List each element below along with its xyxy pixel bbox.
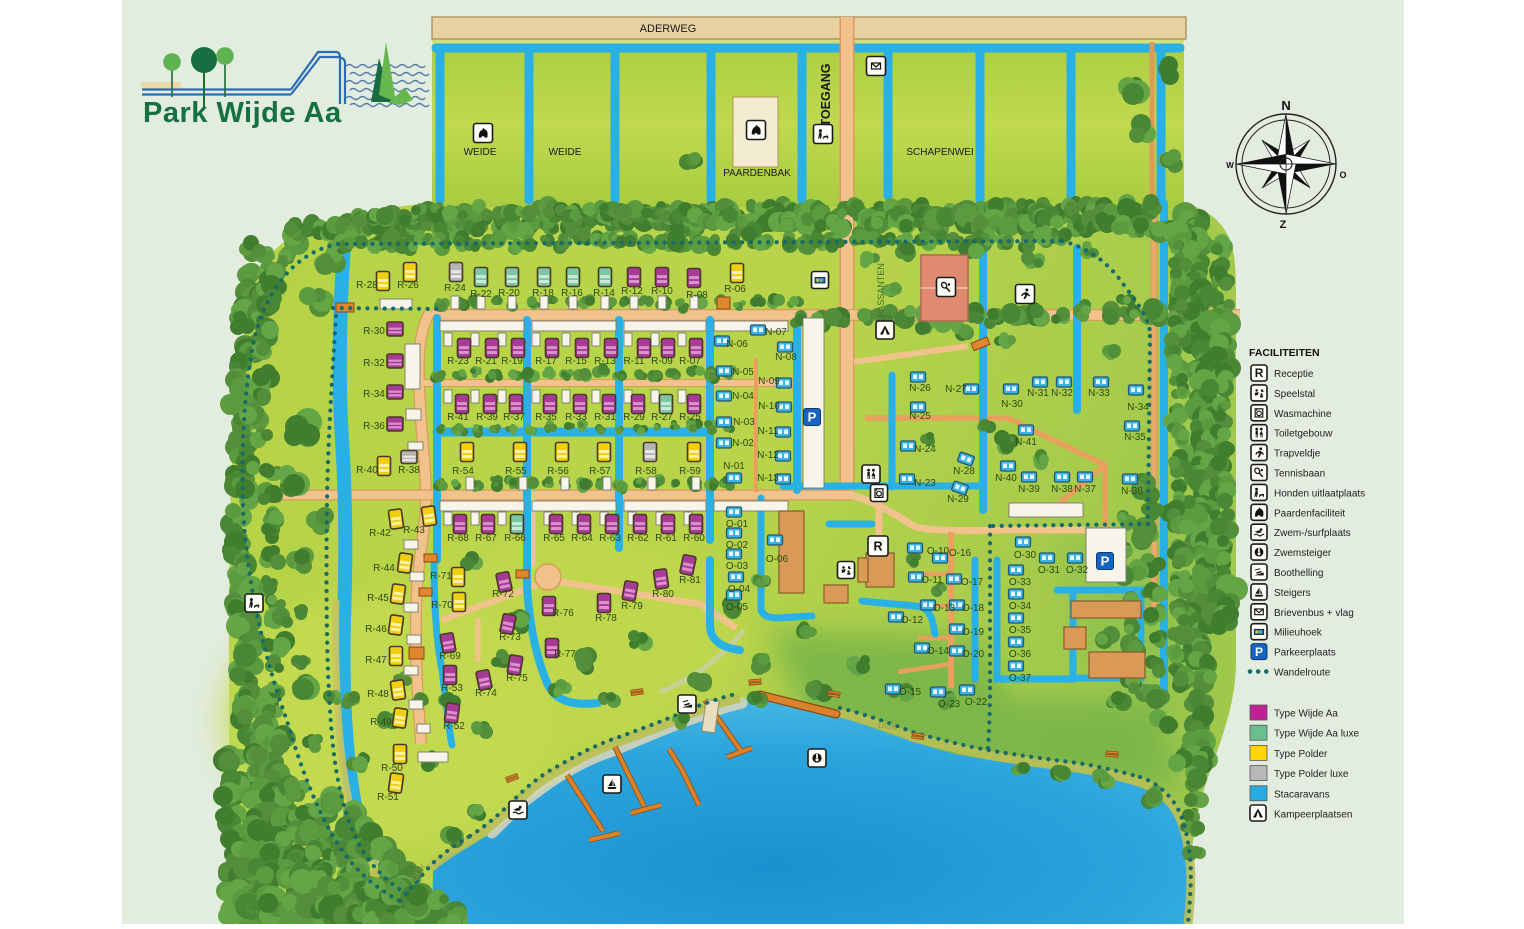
svg-text:N-10: N-10 <box>758 401 780 412</box>
svg-text:O-13: O-13 <box>933 603 956 614</box>
svg-text:FACILITEITEN: FACILITEITEN <box>1249 347 1320 359</box>
svg-text:R: R <box>1255 366 1264 380</box>
svg-text:R-07: R-07 <box>679 356 701 367</box>
svg-text:R-19: R-19 <box>501 356 523 367</box>
svg-text:Speelstal: Speelstal <box>1274 389 1315 400</box>
svg-text:R-32: R-32 <box>363 358 385 369</box>
svg-text:WEIDE: WEIDE <box>549 147 582 158</box>
svg-text:W: W <box>1226 161 1234 170</box>
svg-text:R-33: R-33 <box>565 412 587 423</box>
svg-text:ADERWEG: ADERWEG <box>640 23 697 35</box>
svg-text:R-29: R-29 <box>623 412 645 423</box>
svg-text:N-40: N-40 <box>995 473 1017 484</box>
svg-text:R-53: R-53 <box>441 683 463 694</box>
svg-text:R-81: R-81 <box>679 575 701 586</box>
svg-text:R-51: R-51 <box>377 792 399 803</box>
svg-text:R-12: R-12 <box>621 286 643 297</box>
svg-text:N-34: N-34 <box>1127 402 1149 413</box>
svg-text:O-04: O-04 <box>728 584 751 595</box>
svg-text:Brievenbus + vlag: Brievenbus + vlag <box>1274 608 1354 619</box>
svg-text:N-05: N-05 <box>732 367 754 378</box>
svg-text:N-02: N-02 <box>732 438 754 449</box>
svg-text:R-39: R-39 <box>476 412 498 423</box>
svg-text:R-72: R-72 <box>492 589 514 600</box>
svg-text:R-58: R-58 <box>635 466 657 477</box>
svg-text:N-26: N-26 <box>909 383 931 394</box>
svg-text:TOEGANG: TOEGANG <box>819 64 833 127</box>
svg-text:N-27: N-27 <box>945 384 967 395</box>
svg-text:O-17: O-17 <box>961 577 984 588</box>
svg-text:R-41: R-41 <box>447 412 469 423</box>
svg-text:R-13: R-13 <box>594 356 616 367</box>
svg-text:Parkeerplaats: Parkeerplaats <box>1274 648 1336 659</box>
svg-text:Type Wijde Aa luxe: Type Wijde Aa luxe <box>1274 729 1359 740</box>
svg-text:N-11: N-11 <box>758 426 779 437</box>
svg-text:R-67: R-67 <box>475 533 497 544</box>
svg-text:R-44: R-44 <box>373 563 395 574</box>
svg-text:R-21: R-21 <box>475 356 497 367</box>
svg-text:N-03: N-03 <box>733 417 755 428</box>
svg-text:R-18: R-18 <box>532 288 554 299</box>
svg-text:R-40: R-40 <box>356 465 378 476</box>
svg-text:R-69: R-69 <box>439 651 461 662</box>
svg-text:R-50: R-50 <box>381 763 403 774</box>
svg-text:O-30: O-30 <box>1014 550 1037 561</box>
svg-text:O-37: O-37 <box>1009 673 1032 684</box>
svg-text:R-54: R-54 <box>452 466 474 477</box>
svg-text:Type Polder: Type Polder <box>1274 749 1328 760</box>
svg-text:R-36: R-36 <box>363 421 385 432</box>
svg-text:O-31: O-31 <box>1038 565 1061 576</box>
svg-text:Trapveldje: Trapveldje <box>1274 449 1321 460</box>
svg-text:R-28: R-28 <box>356 280 378 291</box>
svg-text:R-22: R-22 <box>470 289 492 300</box>
svg-text:R-16: R-16 <box>561 288 583 299</box>
svg-text:Type Polder luxe: Type Polder luxe <box>1274 769 1349 780</box>
svg-text:O-34: O-34 <box>1009 601 1032 612</box>
svg-text:Milieuhoek: Milieuhoek <box>1274 628 1323 639</box>
svg-text:R-80: R-80 <box>652 589 674 600</box>
svg-text:O-06: O-06 <box>766 554 789 565</box>
svg-text:N-39: N-39 <box>1018 484 1040 495</box>
svg-text:R-52: R-52 <box>443 721 465 732</box>
svg-text:R-49: R-49 <box>370 717 392 728</box>
svg-text:O-05: O-05 <box>726 602 749 613</box>
svg-text:R-66: R-66 <box>504 533 526 544</box>
svg-text:N-36: N-36 <box>1121 486 1143 497</box>
svg-text:N-33: N-33 <box>1088 388 1110 399</box>
svg-text:Toiletgebouw: Toiletgebouw <box>1274 429 1333 440</box>
svg-text:R-74: R-74 <box>475 688 497 699</box>
svg-text:O-10: O-10 <box>927 546 950 557</box>
svg-text:N-30: N-30 <box>1001 399 1023 410</box>
svg-text:N-31: N-31 <box>1027 388 1049 399</box>
svg-text:Receptie: Receptie <box>1274 369 1314 380</box>
svg-text:R-68: R-68 <box>447 533 469 544</box>
svg-text:R-26: R-26 <box>397 280 419 291</box>
svg-text:R-15: R-15 <box>565 356 587 367</box>
svg-text:N-28: N-28 <box>953 466 975 477</box>
svg-text:O-11: O-11 <box>921 575 943 586</box>
svg-text:R-38: R-38 <box>398 465 420 476</box>
svg-text:R-35: R-35 <box>535 412 557 423</box>
svg-text:R-08: R-08 <box>686 290 708 301</box>
svg-text:N-37: N-37 <box>1074 484 1096 495</box>
svg-text:R-64: R-64 <box>571 533 593 544</box>
svg-text:N-12: N-12 <box>757 450 779 461</box>
svg-text:R-20: R-20 <box>498 288 520 299</box>
svg-text:O-01: O-01 <box>726 519 749 530</box>
svg-text:R-23: R-23 <box>447 356 469 367</box>
svg-text:N-09: N-09 <box>758 376 780 387</box>
svg-text:R-11: R-11 <box>624 356 645 367</box>
svg-text:R-42: R-42 <box>369 528 391 539</box>
svg-text:P: P <box>808 410 817 425</box>
svg-text:R-14: R-14 <box>593 288 615 299</box>
svg-text:O-22: O-22 <box>965 697 988 708</box>
svg-text:O-03: O-03 <box>726 561 749 572</box>
svg-text:Honden uitlaatplaats: Honden uitlaatplaats <box>1274 488 1365 499</box>
svg-text:N-04: N-04 <box>732 391 754 402</box>
svg-text:R-43: R-43 <box>403 525 425 536</box>
svg-text:Tennisbaan: Tennisbaan <box>1274 469 1325 480</box>
svg-text:O-02: O-02 <box>726 540 749 551</box>
svg-text:O-23: O-23 <box>938 699 961 710</box>
svg-text:R-78: R-78 <box>595 613 617 624</box>
svg-text:R-25: R-25 <box>679 412 701 423</box>
svg-text:N-01: N-01 <box>723 461 745 472</box>
svg-text:R-45: R-45 <box>367 593 389 604</box>
svg-text:R-75: R-75 <box>506 673 528 684</box>
svg-text:R-77: R-77 <box>554 649 576 660</box>
svg-text:SCHAPENWEI: SCHAPENWEI <box>906 147 973 158</box>
svg-text:Park Wijde Aa: Park Wijde Aa <box>143 97 342 129</box>
svg-text:R-30: R-30 <box>363 326 385 337</box>
svg-text:Steigers: Steigers <box>1274 588 1311 599</box>
svg-text:N-29: N-29 <box>947 494 969 505</box>
svg-text:R-46: R-46 <box>365 624 387 635</box>
svg-text:R-59: R-59 <box>679 466 701 477</box>
svg-text:Zwemsteiger: Zwemsteiger <box>1274 548 1332 559</box>
svg-text:O-35: O-35 <box>1009 625 1032 636</box>
svg-text:N-24: N-24 <box>914 444 936 455</box>
svg-text:Kampeerplaatsen: Kampeerplaatsen <box>1274 810 1352 821</box>
svg-text:Stacaravans: Stacaravans <box>1274 789 1330 800</box>
svg-text:R-73: R-73 <box>499 632 521 643</box>
svg-text:O-15: O-15 <box>899 687 922 698</box>
svg-text:Zwem-/surfplaats: Zwem-/surfplaats <box>1274 528 1351 539</box>
svg-text:R-62: R-62 <box>627 533 649 544</box>
svg-text:R-71: R-71 <box>430 571 452 582</box>
svg-text:P: P <box>1255 645 1263 659</box>
svg-text:O-18: O-18 <box>962 603 985 614</box>
svg-text:N-35: N-35 <box>1124 432 1146 443</box>
svg-text:R-17: R-17 <box>535 356 557 367</box>
svg-text:R-79: R-79 <box>621 601 643 612</box>
svg-text:WEIDE: WEIDE <box>464 147 497 158</box>
svg-text:R-09: R-09 <box>651 356 673 367</box>
svg-text:Paardenfaciliteit: Paardenfaciliteit <box>1274 508 1345 519</box>
svg-text:R-65: R-65 <box>543 533 565 544</box>
svg-text:N-13: N-13 <box>757 473 779 484</box>
svg-text:R-76: R-76 <box>552 608 574 619</box>
svg-text:O-19: O-19 <box>962 627 985 638</box>
svg-text:O-14: O-14 <box>927 646 950 657</box>
svg-text:N-07: N-07 <box>765 327 787 338</box>
svg-text:O-16: O-16 <box>949 548 972 559</box>
svg-text:R-48: R-48 <box>367 689 389 700</box>
svg-text:R: R <box>873 539 882 553</box>
svg-text:N: N <box>1281 98 1290 113</box>
svg-text:R-47: R-47 <box>365 655 387 666</box>
svg-text:PASSANTEN: PASSANTEN <box>876 263 886 317</box>
svg-text:O-32: O-32 <box>1066 565 1089 576</box>
svg-text:Wandelroute: Wandelroute <box>1274 668 1331 679</box>
svg-text:O-20: O-20 <box>962 649 985 660</box>
svg-text:O: O <box>1339 170 1346 180</box>
svg-text:Wasmachine: Wasmachine <box>1274 409 1332 420</box>
svg-text:N-32: N-32 <box>1051 388 1073 399</box>
svg-text:R-24: R-24 <box>444 283 466 294</box>
svg-text:R-61: R-61 <box>655 533 677 544</box>
svg-text:PAARDENBAK: PAARDENBAK <box>723 168 791 179</box>
svg-text:R-63: R-63 <box>599 533 621 544</box>
svg-text:R-57: R-57 <box>589 466 611 477</box>
svg-text:N-23: N-23 <box>914 478 936 489</box>
svg-text:R-27: R-27 <box>651 412 673 423</box>
svg-text:N-41: N-41 <box>1015 437 1037 448</box>
svg-text:O-36: O-36 <box>1009 649 1032 660</box>
svg-text:R-37: R-37 <box>503 412 525 423</box>
svg-text:N-06: N-06 <box>726 339 748 350</box>
svg-text:R-10: R-10 <box>651 286 673 297</box>
svg-text:R-06: R-06 <box>724 284 746 295</box>
svg-text:N-08: N-08 <box>775 352 797 363</box>
svg-text:Z: Z <box>1280 219 1287 231</box>
svg-text:Type Wijde Aa: Type Wijde Aa <box>1274 709 1338 720</box>
svg-text:R-31: R-31 <box>594 412 616 423</box>
svg-text:Boothelling: Boothelling <box>1274 568 1323 579</box>
svg-text:R-55: R-55 <box>505 466 527 477</box>
svg-text:N-25: N-25 <box>909 411 931 422</box>
svg-text:R-56: R-56 <box>547 466 569 477</box>
svg-text:N-38: N-38 <box>1051 484 1073 495</box>
svg-text:P: P <box>1101 554 1110 569</box>
svg-text:R-70: R-70 <box>431 600 453 611</box>
svg-text:R-60: R-60 <box>683 533 705 544</box>
svg-text:O-12: O-12 <box>901 615 924 626</box>
svg-text:R-34: R-34 <box>363 389 385 400</box>
svg-text:O-33: O-33 <box>1009 577 1032 588</box>
